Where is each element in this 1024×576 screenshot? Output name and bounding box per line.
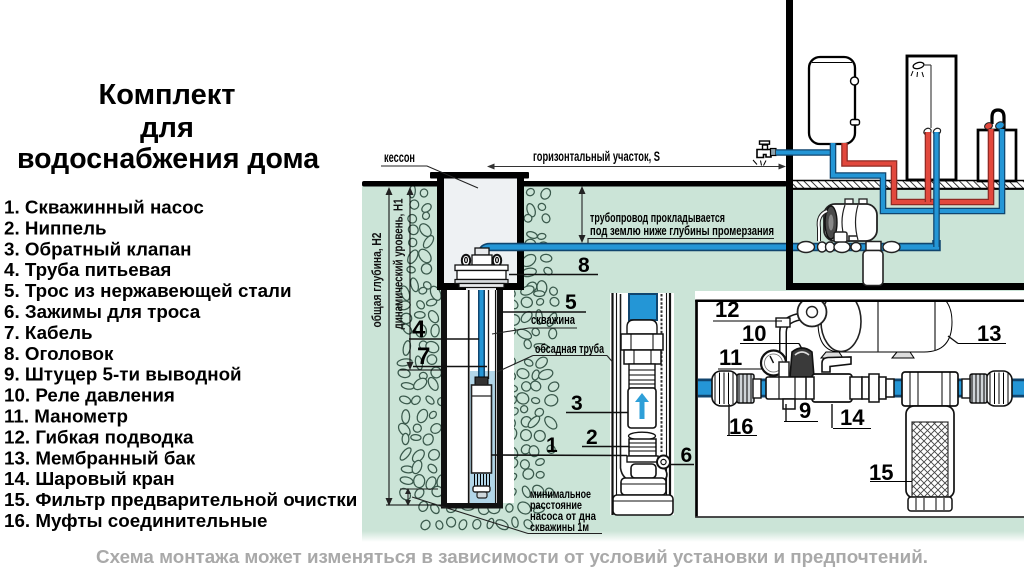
svg-text:11. Манометр: 11. Манометр xyxy=(4,406,128,427)
svg-text:9: 9 xyxy=(799,398,811,423)
svg-text:6: 6 xyxy=(681,444,693,467)
svg-text:14: 14 xyxy=(840,405,865,430)
svg-text:6. Зажимы для троса: 6. Зажимы для троса xyxy=(4,301,201,322)
svg-text:скважина: скважина xyxy=(531,313,576,327)
svg-text:15. Фильтр предварительной очи: 15. Фильтр предварительной очистки xyxy=(4,489,357,510)
svg-text:1. Скважинный насос: 1. Скважинный насос xyxy=(4,197,204,218)
svg-text:трубопровод прокладывается: трубопровод прокладывается xyxy=(590,211,725,225)
svg-text:10. Реле давления: 10. Реле давления xyxy=(4,385,175,406)
svg-text:1: 1 xyxy=(546,434,558,457)
svg-text:общая глубина, Н2: общая глубина, Н2 xyxy=(369,233,384,328)
svg-text:2. Ниппель: 2. Ниппель xyxy=(4,217,107,238)
svg-text:10: 10 xyxy=(742,321,766,346)
svg-text:11: 11 xyxy=(719,345,742,370)
svg-text:Комплект: Комплект xyxy=(99,79,236,111)
svg-text:9. Штуцер 5-ти выводной: 9. Штуцер 5-ти выводной xyxy=(4,364,242,385)
svg-text:12. Гибкая подводка: 12. Гибкая подводка xyxy=(4,426,194,447)
svg-text:13: 13 xyxy=(977,321,1001,346)
svg-text:обсадная труба: обсадная труба xyxy=(535,342,605,356)
svg-text:12: 12 xyxy=(715,297,739,322)
svg-text:кессон: кессон xyxy=(384,149,415,165)
svg-text:водоснабжения дома: водоснабжения дома xyxy=(17,143,320,175)
svg-text:4. Труба питьевая: 4. Труба питьевая xyxy=(4,259,171,280)
svg-text:13. Мембранный бак: 13. Мембранный бак xyxy=(4,447,196,468)
svg-text:2: 2 xyxy=(586,426,598,449)
svg-text:горизонтальный участок, S: горизонтальный участок, S xyxy=(533,149,660,164)
svg-text:5. Трос из нержавеющей стали: 5. Трос из нержавеющей стали xyxy=(4,280,292,301)
svg-text:Схема монтажа может изменяться: Схема монтажа может изменяться в зависим… xyxy=(96,546,928,567)
svg-text:под землю ниже глубины промерз: под землю ниже глубины промерзания xyxy=(590,224,774,238)
svg-text:3: 3 xyxy=(571,392,583,415)
svg-text:для: для xyxy=(140,112,194,144)
svg-text:8: 8 xyxy=(578,254,590,277)
svg-text:скважины 1м: скважины 1м xyxy=(530,520,589,534)
svg-text:3. Обратный клапан: 3. Обратный клапан xyxy=(4,238,192,259)
svg-text:14. Шаровый кран: 14. Шаровый кран xyxy=(4,468,175,489)
svg-text:16. Муфты соединительные: 16. Муфты соединительные xyxy=(4,510,267,531)
svg-text:5: 5 xyxy=(565,291,577,314)
svg-text:8. Оголовок: 8. Оголовок xyxy=(4,343,114,364)
svg-text:7. Кабель: 7. Кабель xyxy=(4,322,93,343)
svg-text:динамический уровень, Н1: динамический уровень, Н1 xyxy=(391,199,406,330)
